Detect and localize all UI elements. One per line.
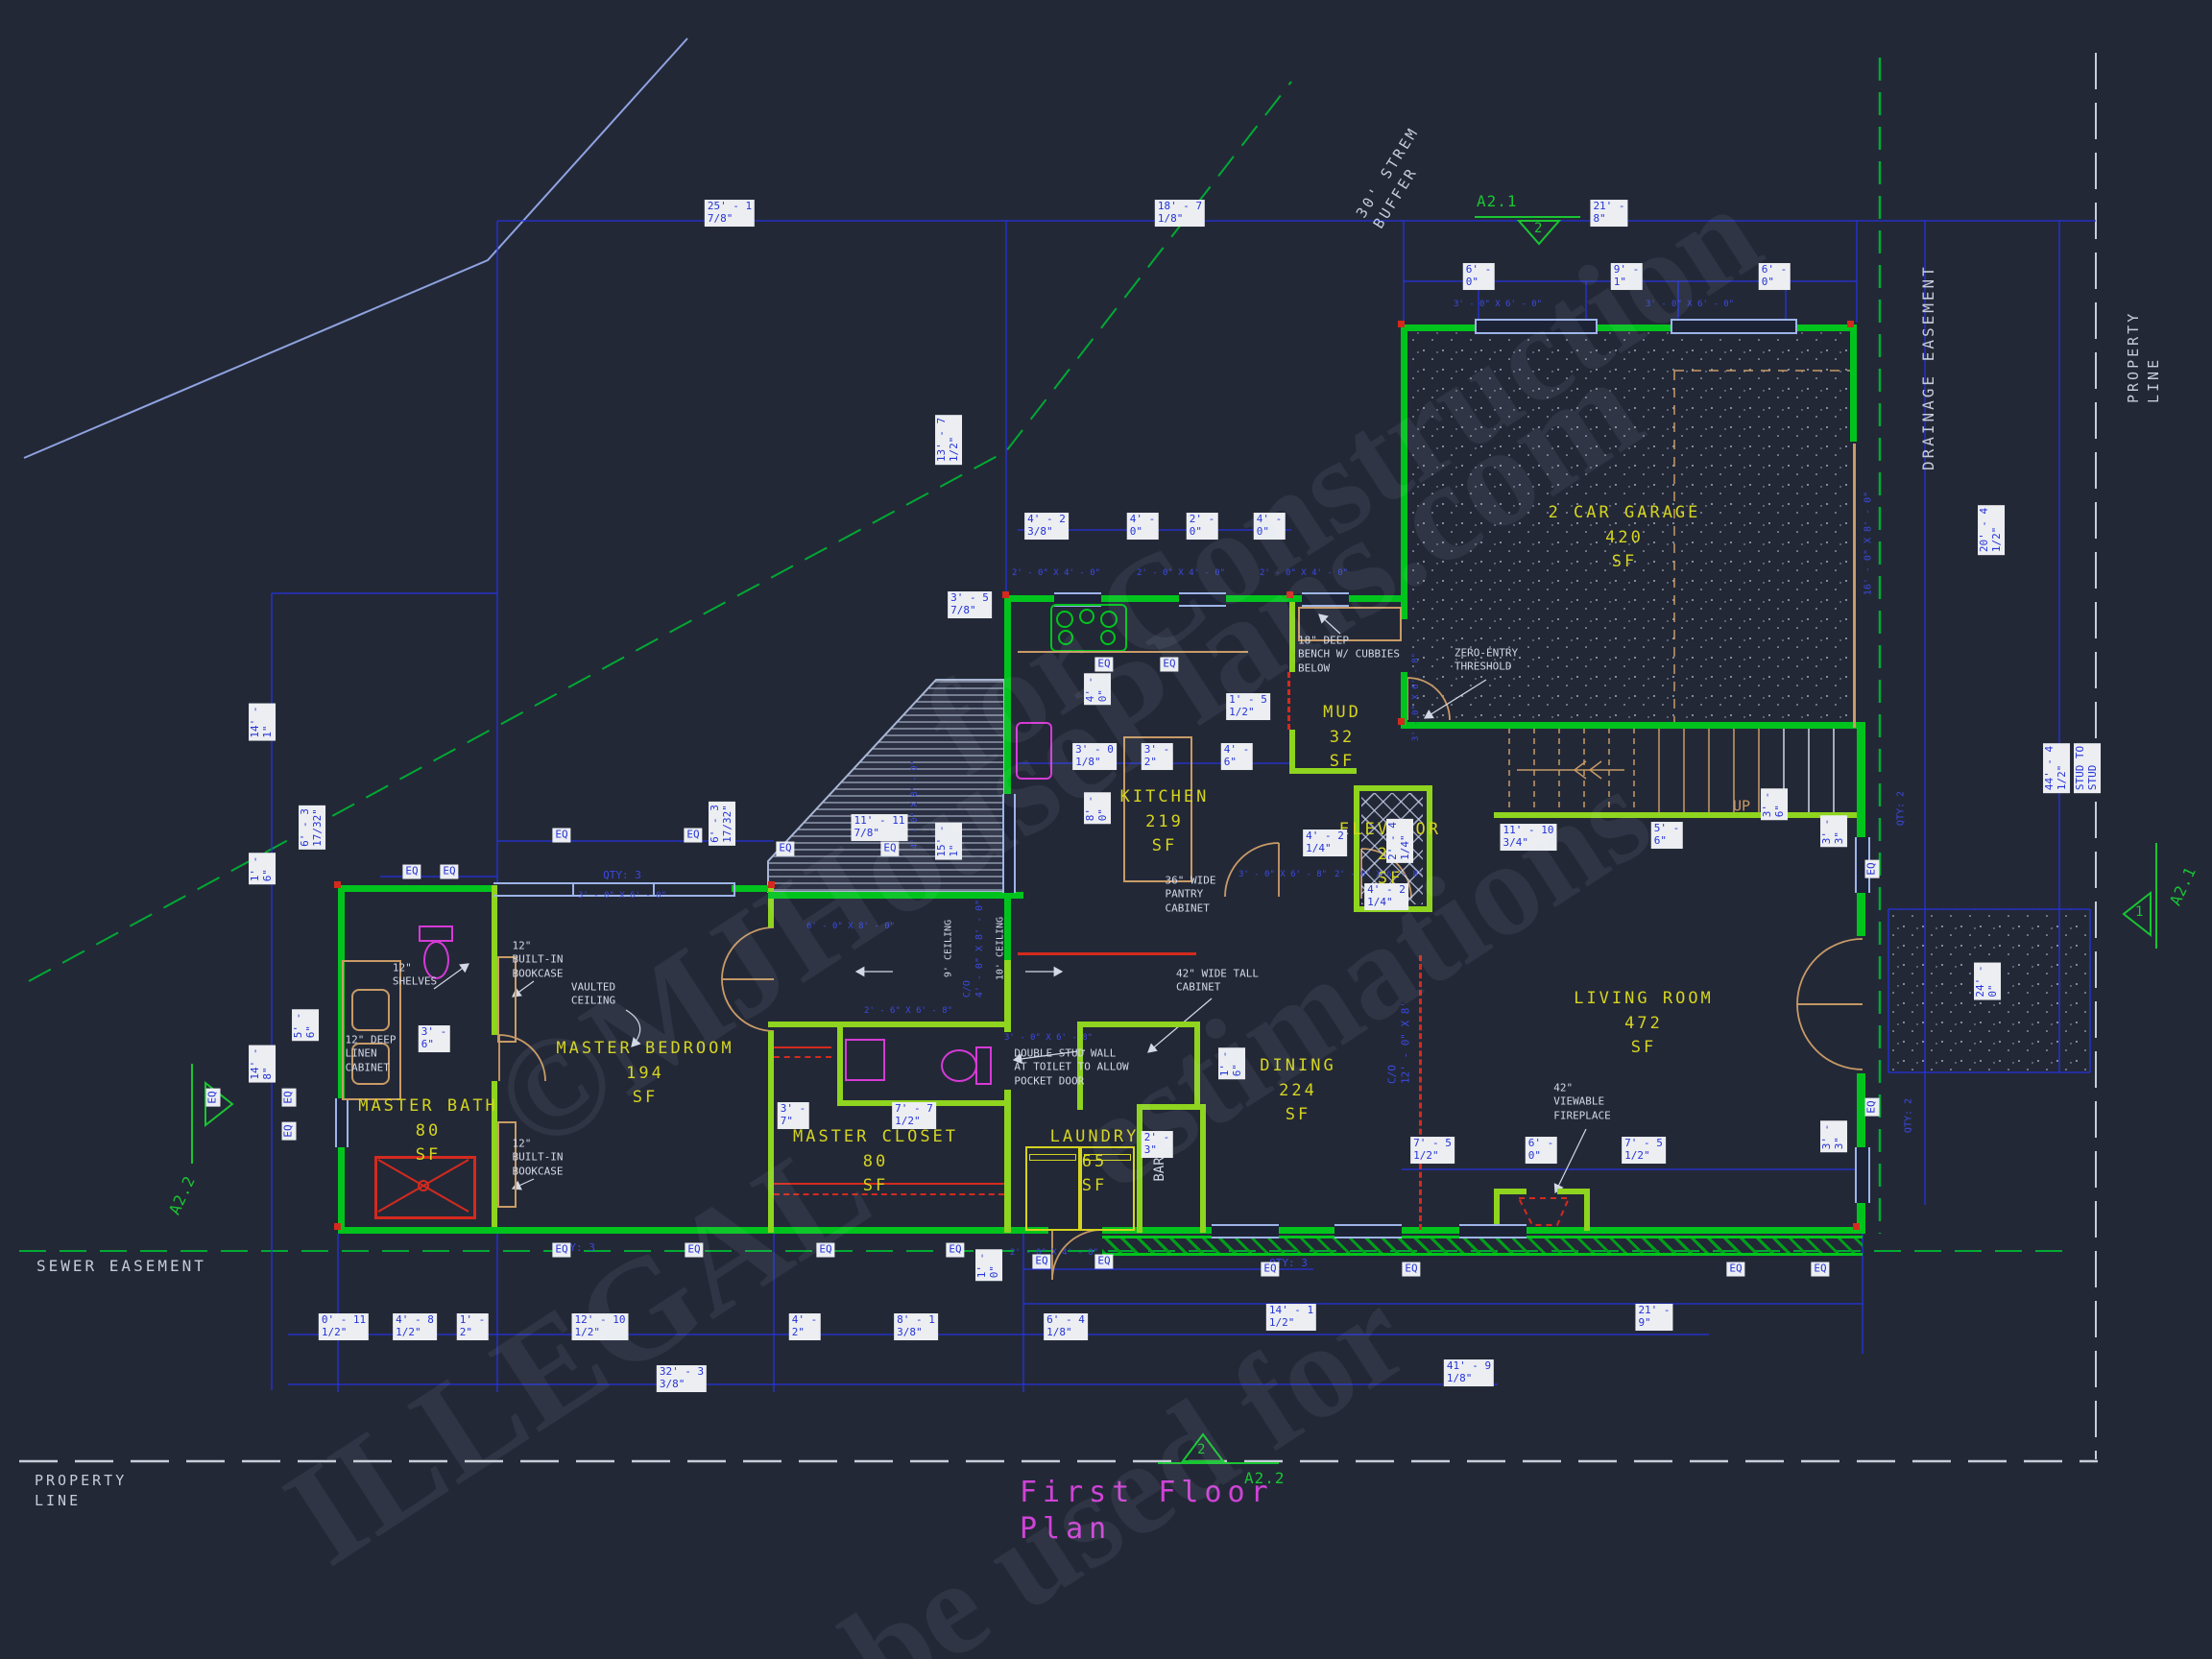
note-label: DOUBLE STUD WALL AT TOILET TO ALLOW POCK… (1014, 1047, 1128, 1089)
dim-box: 0' - 11 1/2" (319, 1313, 369, 1340)
sliding-door (1002, 794, 1016, 893)
dim-box: 6' - 0" (1463, 263, 1495, 290)
dim-box: 4' - 2 1/4" (1364, 883, 1408, 910)
dim-box: 9' - 1" (1611, 263, 1643, 290)
dim-box: 5' - 6" (1651, 822, 1683, 849)
dim-box: 24' - 0" (1974, 962, 2001, 999)
marker-left-sheet: A2.2 (165, 1172, 199, 1217)
wall (1349, 595, 1404, 602)
burner (1058, 630, 1073, 645)
window (1334, 1224, 1402, 1238)
dim-box: 11' - 10 3/4" (1501, 824, 1557, 851)
dim-box: 3' - 6" (1761, 789, 1788, 821)
dim-box: 32' - 3 3/8" (657, 1365, 707, 1392)
dim-box: 2' - 4 1/4" (1386, 819, 1413, 863)
wall (837, 1022, 843, 1106)
wall (1200, 1104, 1206, 1233)
room-label: MASTER BEDROOM 194 SF (556, 1037, 733, 1111)
wall (1857, 893, 1865, 936)
contour-line (24, 38, 687, 458)
room-label: DINING 224 SF (1260, 1054, 1335, 1128)
note-label: ZERO-ENTRY THRESHOLD (1455, 647, 1518, 675)
porch-slab (1102, 1236, 1863, 1256)
dim-box: 1' - 6" (249, 854, 276, 885)
dim-box: 14' - 1" (249, 703, 276, 740)
closet-rod (774, 1046, 831, 1048)
dim-box: 21' - 8" (1590, 200, 1627, 227)
wall (1857, 722, 1865, 839)
wc-sink (845, 1039, 885, 1081)
eq-tag: EQ (1865, 859, 1880, 878)
dim-box: 20' - 4 1/2" (1978, 505, 2005, 555)
note-label: 12" DEEP LINEN CABINET (346, 1034, 397, 1075)
pantry-cabinet-line (1018, 952, 1196, 955)
eq-tag: EQ (402, 865, 421, 879)
wall (1401, 331, 1407, 619)
eq-tag: EQ (684, 829, 702, 843)
window (1179, 592, 1226, 607)
dim-box: 41' - 9 1/8" (1444, 1359, 1494, 1386)
note-label: 42" VIEWABLE FIREPLACE (1553, 1082, 1611, 1123)
dim-box: 6' - 3 17/32" (709, 802, 735, 846)
dim-box: 4' - 6" (1221, 743, 1253, 770)
dim-box: 8' - 1 3/8" (894, 1313, 938, 1340)
title-line1: First Floor (1020, 1475, 1274, 1511)
room-label: LIVING ROOM 472 SF (1574, 987, 1714, 1061)
wall (338, 885, 497, 892)
corner-marker (1853, 1223, 1860, 1230)
dim-box: 13' - 7 1/2" (935, 415, 962, 465)
dim-box: 3' - 5 7/8" (948, 591, 992, 618)
dim-box: 3' - 3" (1820, 816, 1847, 848)
fireplace-wall (1557, 1189, 1590, 1194)
cased-opening (1287, 672, 1295, 730)
corner-marker (1847, 321, 1854, 327)
burner (1056, 611, 1073, 628)
note-label: QTY: 2 (1895, 791, 1908, 826)
wall (1097, 595, 1183, 602)
wall (837, 1022, 1006, 1027)
eq-tag: EQ (880, 842, 899, 856)
note-label: 16' - 0" X 8' - 0" (1863, 492, 1875, 595)
dim-box: 4' - 0" (1127, 513, 1159, 540)
dim-box: 6' - 0" (1759, 263, 1791, 290)
eq-tag: EQ (1160, 658, 1178, 672)
note-label: C/O 4' - 0" X 8' - 0" (961, 900, 986, 998)
eq-tag: EQ (552, 829, 570, 843)
room-label: 2 CAR GARAGE 420 SF (1549, 501, 1701, 575)
note-label: 4' - 0" X 8' - 0" (910, 760, 922, 849)
cased-opening-dining-living (1419, 955, 1427, 1230)
dim-box: 7' - 7 1/2" (892, 1102, 936, 1129)
room-label: MUD 32 SF (1323, 701, 1361, 775)
dim-box: 4' - 2 1/4" (1303, 829, 1347, 856)
window (335, 1098, 349, 1147)
marker-right-num: 1 (2135, 904, 2144, 920)
dim-box: 4' - 8 1/2" (393, 1313, 437, 1340)
burner (1100, 611, 1118, 628)
kitchen-sink (1016, 722, 1052, 780)
wall (1401, 325, 1479, 331)
dim-box: 18' - 7 1/8" (1155, 200, 1205, 227)
dim-box: 3' - 2" (1142, 743, 1173, 770)
note-label: 3' - 0" X 6' - 0" (578, 891, 666, 902)
window (1855, 1147, 1870, 1203)
sewer-easement-label: SEWER EASEMENT (36, 1256, 206, 1277)
sheet-title: First Floor Plan (1020, 1475, 1274, 1547)
note-label: 3' - 0" X 6' - 0" (1646, 300, 1734, 311)
drainage-easement-label: DRAINAGE EASEMENT (1918, 264, 1939, 470)
dim-box: 7' - 5 1/2" (1410, 1137, 1455, 1164)
eq-tag: EQ (1726, 1262, 1744, 1277)
dim-box: 2' - 0" (1187, 513, 1218, 540)
wall (1289, 730, 1295, 773)
floor-plan-canvas: First Floor Plan SEWER EASEMENT PROPERTY… (0, 0, 2212, 1659)
wall (1401, 722, 1857, 729)
note-label: 12" BUILT-IN BOOKCASE (513, 1138, 564, 1179)
wall (1850, 325, 1857, 442)
dim-box: 4' - 0" (1084, 674, 1111, 706)
wall (1354, 785, 1431, 791)
eq-tag: EQ (946, 1243, 964, 1258)
dim-box: 6' - 3 17/32" (299, 805, 325, 850)
note-label: 2' - 0" X 6' - 8" (1334, 870, 1423, 881)
wall (768, 1031, 774, 1233)
marker-top-sheet: A2.1 (1477, 192, 1518, 210)
dim-box: 7' - 5 1/2" (1622, 1137, 1666, 1164)
window (1212, 1224, 1279, 1238)
dim-box: 15' - 1" (935, 822, 962, 859)
note-label: C/O 12' - 0" X 8' (1386, 1001, 1414, 1084)
note-label: QTY: 2 (1903, 1098, 1915, 1133)
note-label: 3' - 0" X 6' - 8" (1238, 870, 1327, 881)
eq-tag: EQ (1865, 1097, 1880, 1116)
note-label: 3' - 0" X 6' - 8" (1411, 653, 1423, 741)
room-label: MASTER BATH 80 SF (358, 1094, 498, 1168)
note-label: 2' - 6" X 6' - 8" (864, 1006, 952, 1018)
corner-marker (1398, 718, 1405, 725)
note-label: VAULTED CEILING (571, 981, 615, 1009)
corner-marker (1286, 591, 1293, 598)
burner (1079, 609, 1094, 624)
dim-box: STUD TO STUD (2074, 743, 2101, 793)
stream-buffer-label: 30' STREM BUFFER (1352, 123, 1441, 232)
note-label: 18" DEEP BENCH W/ CUBBIES BELOW (1298, 635, 1400, 676)
dim-box: 3' - 0 1/8" (1072, 743, 1117, 770)
corner-marker (768, 881, 775, 888)
eq-tag: EQ (1094, 1255, 1113, 1269)
fireplace-wall (1584, 1189, 1590, 1231)
eq-tag: EQ (282, 1088, 297, 1106)
room-label: LAUNDRY 65 SF (1050, 1125, 1140, 1199)
vanity-sink (351, 989, 390, 1031)
eq-tag: EQ (816, 1243, 834, 1258)
dim-box: 6' - 0" (1526, 1137, 1557, 1164)
room-label: KITCHEN 219 SF (1120, 785, 1210, 859)
garage-door-panel (1853, 444, 1856, 728)
dim-box: 1' - 2" (457, 1313, 489, 1340)
dim-box: 4' - 0" (1254, 513, 1286, 540)
wall (1004, 595, 1058, 602)
wall (338, 1227, 1025, 1234)
note-label: 10' CEILING (995, 917, 1007, 980)
eq-tag: EQ (1811, 1262, 1829, 1277)
wall (1077, 1022, 1200, 1027)
corner-marker (334, 1223, 341, 1230)
eq-tag: EQ (1261, 1262, 1279, 1277)
marker-right-sheet: A2.1 (2166, 863, 2200, 908)
marker-bottom-sheet: A2.2 (1244, 1469, 1286, 1487)
wall (1194, 1022, 1200, 1110)
deck-hatch (768, 680, 1004, 892)
dim-box: 5' - 6" (292, 1010, 319, 1042)
note-label: 2' - 0" X 4' - 0" (1012, 568, 1100, 580)
dim-box: 1' - 6" (1218, 1048, 1245, 1080)
toilet-tank (419, 926, 453, 942)
dim-box: 12' - 10 1/2" (572, 1313, 629, 1340)
garage-door-header (1475, 319, 1598, 334)
eq-tag: EQ (1032, 1255, 1050, 1269)
dim-box: 1' - 5 1/2" (1226, 693, 1270, 720)
note-label: 6' - 0" X 8' - 0" (806, 922, 895, 933)
note-label: 12" SHELVES (393, 962, 437, 990)
note-label: BAR (1151, 1157, 1168, 1181)
note-label: 2' - 0" X 4' - 0" (1260, 568, 1348, 580)
wall (1400, 1227, 1463, 1234)
eq-tag: EQ (440, 865, 458, 879)
note-label: QTY: 3 (603, 869, 641, 882)
dim-box: 25' - 1 7/8" (705, 200, 755, 227)
dim-box: 11' - 11 7/8" (852, 814, 908, 841)
stream-buffer-line (29, 82, 1291, 981)
dim-box: 6' - 4 1/8" (1044, 1313, 1088, 1340)
dim-box: 21' - 9" (1635, 1304, 1672, 1331)
eq-tag: EQ (282, 1121, 297, 1140)
wall (1525, 1227, 1863, 1234)
eq-tag: EQ (206, 1088, 221, 1106)
wall (1004, 1090, 1011, 1233)
wc-toilet-bowl (941, 1049, 977, 1082)
dim-box: 4' - 2" (789, 1313, 821, 1340)
garage-door-header (1671, 319, 1797, 334)
property-line-right-label: PROPERTY LINE (2124, 311, 2164, 403)
wall (338, 1147, 345, 1234)
dim-box: 3' - 6" (419, 1025, 450, 1052)
closet-shelf (774, 1056, 831, 1060)
room-label: MASTER CLOSET 80 SF (793, 1125, 958, 1199)
note-label: 3' - 0" X 6' - 8" (1004, 1033, 1093, 1045)
corner-marker (1002, 591, 1009, 598)
eq-tag: EQ (685, 1243, 703, 1258)
wall (1289, 602, 1295, 672)
note-label: 3' - 0" X 6' - 0" (1454, 300, 1542, 311)
dim-box: 8' - 0" (1084, 793, 1111, 825)
eq-tag: EQ (1402, 1262, 1420, 1277)
marker-bottom-num: 2 (1197, 1442, 1206, 1457)
fireplace-firebox (1519, 1198, 1569, 1225)
dim-box: 14' - 1 1/2" (1266, 1304, 1316, 1331)
note-label: 2' - 0" X 4' - 0" (1010, 1248, 1098, 1260)
wall (1004, 598, 1011, 794)
window (1459, 1224, 1527, 1238)
wall (768, 892, 1023, 899)
burner (1100, 630, 1116, 645)
dim-box: 2' - 3" (1142, 1131, 1173, 1158)
plan-linework (0, 0, 2212, 1659)
dim-box: 14' - 8" (249, 1045, 276, 1082)
kitchen-counter (1018, 651, 1248, 653)
corner-marker (1398, 321, 1405, 327)
note-label: 42" WIDE TALL CABINET (1176, 968, 1259, 996)
wc-toilet-tank (975, 1046, 992, 1085)
wall (1277, 1227, 1338, 1234)
note-label: 2' - 0" X 4' - 0" (1137, 568, 1225, 580)
note-label: 12" BUILT-IN BOOKCASE (513, 940, 564, 981)
note-label: 9' CEILING (943, 920, 955, 977)
eq-tag: EQ (776, 842, 794, 856)
dim-box: 3' - 7" (778, 1102, 809, 1129)
stair-rail-wall (1494, 812, 1857, 818)
note-label: UP (1733, 797, 1750, 816)
title-line2: Plan (1020, 1511, 1274, 1548)
eq-tag: EQ (1094, 658, 1113, 672)
note-label: 36" WIDE PANTRY CABINET (1166, 875, 1216, 916)
wall (768, 1022, 837, 1027)
dim-box: 44' - 4 1/2" (2043, 743, 2070, 793)
dim-box: 4' - 2 3/8" (1024, 513, 1069, 540)
fireplace-wall (1494, 1189, 1527, 1194)
dim-box: 1' - 0" (975, 1250, 1002, 1282)
marker-top-num: 2 (1534, 221, 1543, 236)
property-line-bottom-label: PROPERTY LINE (35, 1471, 127, 1511)
window (1302, 592, 1349, 607)
dim-box: 3' - 3" (1820, 1121, 1847, 1153)
corner-marker (334, 881, 341, 888)
wall (1137, 1104, 1200, 1110)
wall (1590, 325, 1678, 331)
eq-tag: EQ (552, 1243, 570, 1258)
